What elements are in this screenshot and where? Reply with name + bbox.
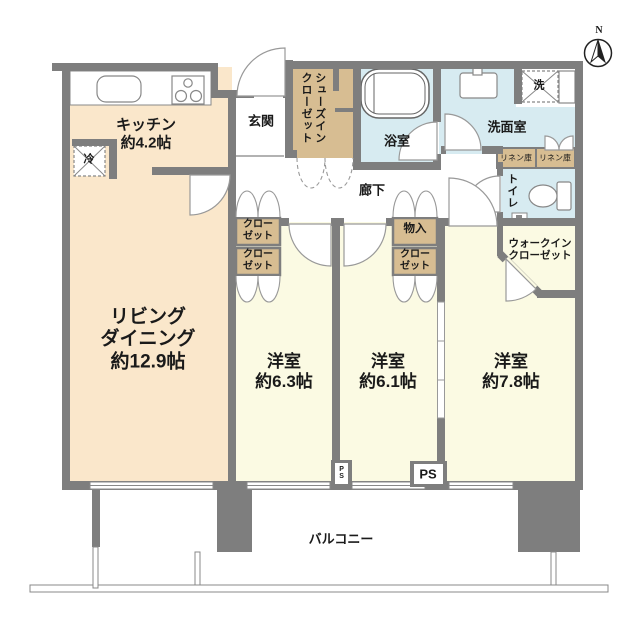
balcony-divider-left <box>195 552 200 585</box>
balcony-label: バルコニー <box>309 531 374 546</box>
kitchen-label: キッチン 約4.2帖 <box>116 116 176 151</box>
balcony-side-rail <box>93 547 98 588</box>
refrigerator-label: 冷 <box>84 154 95 167</box>
entrance-label: 玄関 <box>248 113 274 128</box>
laundry-shelf <box>559 71 575 103</box>
ps-small-label: PS <box>337 466 345 480</box>
bathtub-icon <box>361 69 429 118</box>
bedroom3-label: 洋室 約7.8帖 <box>482 352 540 392</box>
stove-burner <box>191 91 202 102</box>
bedroom1-label: 洋室 約6.3帖 <box>255 352 313 392</box>
bedroom2-closet-label: クロー ゼット <box>400 249 430 273</box>
washroom-label: 洗面室 <box>487 119 526 134</box>
washing-machine-label: 洗 <box>534 80 545 93</box>
kitchen-sink-icon <box>97 76 141 102</box>
balcony-structure <box>30 547 608 592</box>
bathroom-label: 浴室 <box>384 133 410 148</box>
monoire-label: 物入 <box>404 223 427 237</box>
compass-icon <box>585 40 612 67</box>
linen-right-label: リネン庫 <box>539 153 571 162</box>
bedroom2-label: 洋室 約6.1帖 <box>359 352 417 392</box>
toilet-tank <box>557 182 571 210</box>
walk-in-closet-label: ウォークイン クローゼット <box>509 238 572 263</box>
toilet-bowl-icon <box>529 185 557 207</box>
balcony-rail <box>30 585 608 592</box>
wash-basin-icon <box>460 73 497 98</box>
sliding-partition <box>438 302 445 418</box>
corridor-label: 廊下 <box>359 182 385 197</box>
stove-burner <box>176 91 187 102</box>
linen-left-label: リネン庫 <box>500 153 532 162</box>
living-dining-label: リビング ダイニング 約12.9帖 <box>100 306 195 373</box>
balcony-divider-right <box>551 552 556 585</box>
floor-plan: キッチン 約4.2帖 リビング ダイニング 約12.9帖 洋室 約6.3帖 洋室… <box>0 0 640 640</box>
shoes-in-closet-label: シューズイン クローゼット <box>298 72 326 144</box>
windows <box>90 482 513 489</box>
bedroom1-closet-label: クロー ゼット <box>243 249 273 273</box>
stove-burner <box>184 79 192 87</box>
entrance-door <box>237 48 285 96</box>
ps-large-label: PS <box>419 466 436 481</box>
compass-north-label: N <box>595 25 602 37</box>
partition-panels <box>438 302 445 418</box>
hall-closet-label: クロー ゼット <box>243 219 273 243</box>
toilet-label: トイレ <box>504 173 518 209</box>
